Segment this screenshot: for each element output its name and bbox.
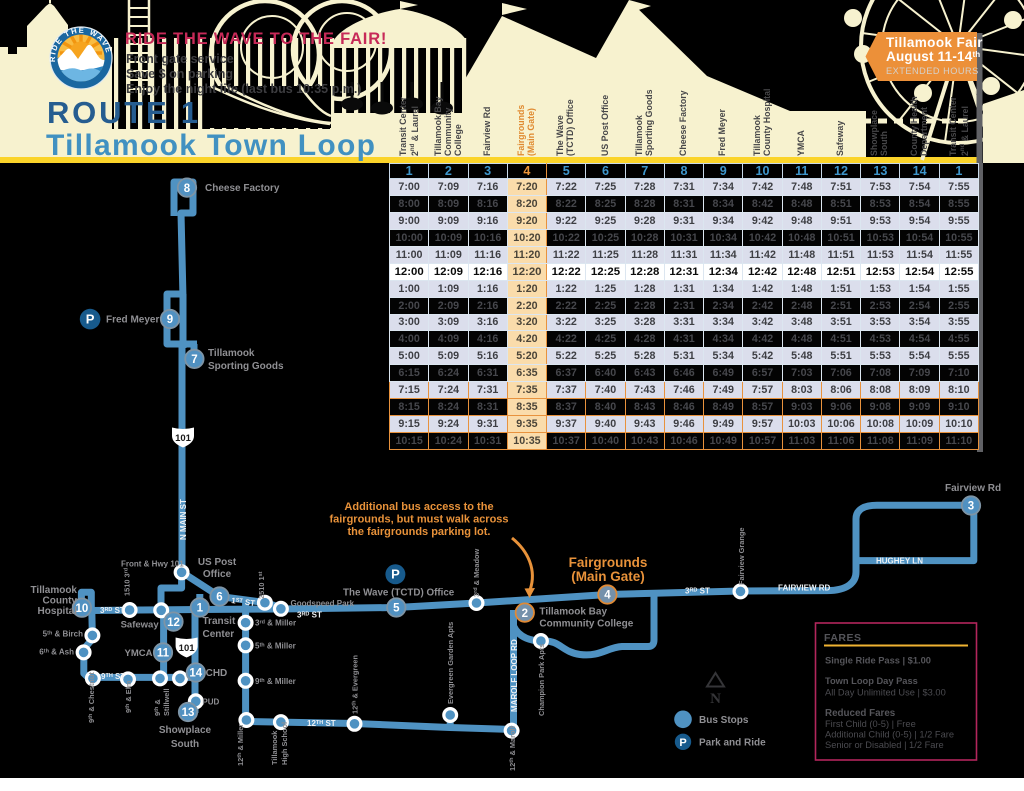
- svg-text:9th & Elm: 9th & Elm: [124, 680, 133, 713]
- svg-text:Transit: Transit: [203, 616, 236, 627]
- svg-text:Single Ride Pass | $1.00: Single Ride Pass | $1.00: [825, 656, 931, 666]
- svg-text:Office: Office: [203, 569, 232, 580]
- svg-text:August 11-14th: August 11-14th: [886, 49, 980, 64]
- svg-text:Goodspeed Park: Goodspeed Park: [291, 599, 355, 608]
- svg-text:Community College: Community College: [539, 619, 633, 630]
- svg-text:(Main Gate): (Main Gate): [571, 569, 645, 584]
- svg-text:Town Loop Day Pass: Town Loop Day Pass: [825, 676, 918, 686]
- svg-text:Fairgrounds: Fairgrounds: [569, 555, 648, 570]
- svg-text:9th & Miller: 9th & Miller: [255, 677, 296, 686]
- svg-text:Sporting Goods: Sporting Goods: [208, 361, 284, 372]
- svg-text:5th & Miller: 5th & Miller: [255, 641, 296, 650]
- svg-text:EXTENDED HOURS: EXTENDED HOURS: [886, 66, 979, 76]
- svg-text:CHD: CHD: [206, 668, 228, 679]
- svg-text:P: P: [679, 737, 686, 749]
- svg-text:the fairgrounds parking lot.: the fairgrounds parking lot.: [347, 526, 490, 538]
- svg-text:fairgrounds, but must walk acr: fairgrounds, but must walk across: [329, 514, 508, 526]
- svg-text:Cheese Factory: Cheese Factory: [205, 183, 280, 194]
- svg-text:9th & Chestnut: 9th & Chestnut: [87, 672, 96, 723]
- svg-text:ROUTE 1: ROUTE 1: [47, 95, 201, 130]
- svg-text:First Child (0-5) | Free: First Child (0-5) | Free: [825, 719, 916, 729]
- svg-text:Front gate service: Front gate service: [126, 52, 234, 66]
- svg-text:YMCA: YMCA: [125, 648, 153, 659]
- svg-text:1510 3rd: 1510 3rd: [123, 568, 132, 596]
- svg-text:3rd & Meadow: 3rd & Meadow: [472, 549, 481, 597]
- svg-text:Tillamook Town Loop: Tillamook Town Loop: [46, 129, 376, 162]
- svg-text:12th & Miller: 12th & Miller: [236, 724, 245, 766]
- svg-text:5th & Birch: 5th & Birch: [43, 630, 83, 639]
- svg-text:Additional bus access to the: Additional bus access to the: [344, 501, 493, 513]
- svg-text:Evergreen Garden Apts: Evergreen Garden Apts: [446, 622, 455, 704]
- svg-text:Enjoy the night life (last bus: Enjoy the night life (last bus 10:35 p.m…: [126, 82, 361, 96]
- svg-text:12th & Evergreen: 12th & Evergreen: [351, 654, 360, 714]
- svg-text:N: N: [710, 691, 721, 707]
- svg-text:Hospital: Hospital: [38, 606, 78, 617]
- svg-text:Tillamook Bay: Tillamook Bay: [539, 607, 607, 618]
- svg-text:Front & Hwy 101: Front & Hwy 101: [121, 560, 184, 569]
- svg-text:Additional Child (0-5) | 1/2 F: Additional Child (0-5) | 1/2 Fare: [825, 730, 954, 740]
- svg-text:Center: Center: [203, 629, 235, 640]
- svg-text:South: South: [171, 739, 199, 750]
- svg-text:Save $ on parking: Save $ on parking: [126, 67, 233, 81]
- svg-text:PUD: PUD: [202, 697, 219, 706]
- svg-text:Showplace: Showplace: [159, 725, 212, 736]
- svg-text:RIDE THE WAVE TO THE FAIR!: RIDE THE WAVE TO THE FAIR!: [125, 30, 387, 48]
- svg-text:3rd & Miller: 3rd & Miller: [255, 619, 296, 628]
- svg-text:Fairview Rd: Fairview Rd: [945, 483, 1001, 494]
- svg-text:9th &: 9th &: [153, 699, 162, 716]
- svg-text:Senior or Disabled | 1/2 Fare: Senior or Disabled | 1/2 Fare: [825, 740, 944, 750]
- svg-text:Tillamook: Tillamook: [270, 730, 279, 765]
- svg-text:High School: High School: [280, 722, 289, 765]
- svg-text:12th & Marolf: 12th & Marolf: [508, 725, 517, 771]
- svg-text:US Post: US Post: [198, 557, 237, 568]
- svg-text:All Day Unlimited Use | $3.00: All Day Unlimited Use | $3.00: [825, 688, 946, 698]
- svg-text:Bus Stops: Bus Stops: [699, 715, 749, 726]
- svg-text:Fairview Grange: Fairview Grange: [737, 527, 746, 585]
- svg-text:Tillamook Fair: Tillamook Fair: [886, 35, 983, 50]
- svg-text:Reduced Fares: Reduced Fares: [825, 708, 896, 719]
- svg-text:County: County: [43, 596, 78, 607]
- svg-text:Tillamook: Tillamook: [208, 348, 255, 359]
- svg-text:2510 1st: 2510 1st: [257, 571, 266, 599]
- svg-text:Fred Meyer: Fred Meyer: [106, 315, 159, 326]
- svg-text:FARES: FARES: [824, 632, 862, 644]
- svg-text:Tillamook: Tillamook: [31, 585, 78, 596]
- svg-text:Park and Ride: Park and Ride: [699, 738, 766, 749]
- svg-text:Champion Park Apts: Champion Park Apts: [537, 644, 546, 716]
- svg-text:Stillwell: Stillwell: [162, 688, 171, 716]
- svg-text:Safeway: Safeway: [121, 620, 160, 631]
- svg-text:The Wave (TCTD) Office: The Wave (TCTD) Office: [343, 588, 455, 599]
- svg-text:6th & Ash: 6th & Ash: [39, 648, 74, 657]
